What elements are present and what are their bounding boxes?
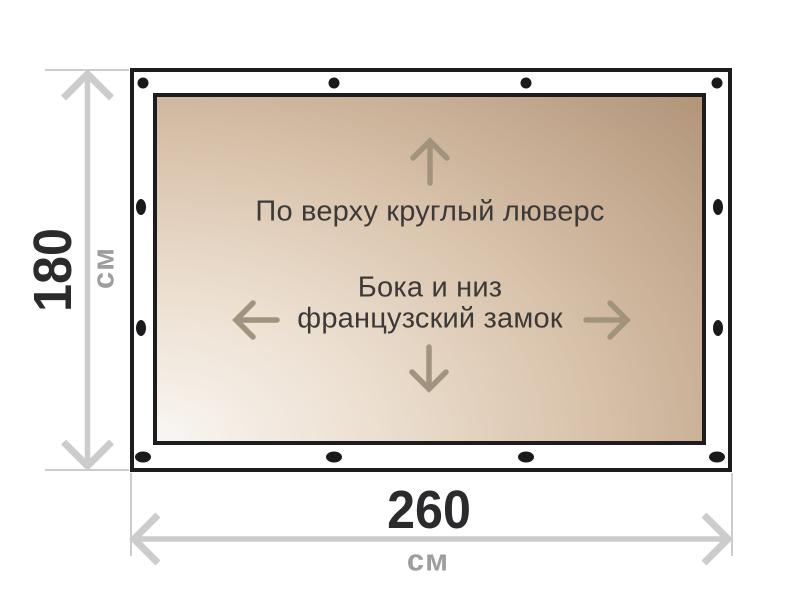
width-value: 260 bbox=[387, 483, 471, 537]
width-unit: см bbox=[407, 545, 449, 576]
other-edges-label-line2: французский замок bbox=[297, 305, 562, 334]
height-value: 180 bbox=[26, 228, 80, 312]
left-arrow-icon bbox=[236, 303, 277, 337]
up-arrow-icon bbox=[413, 141, 447, 183]
right-arrow-icon bbox=[586, 303, 627, 337]
top-edge-label: По верху круглый люверс bbox=[255, 198, 604, 227]
diagram-canvas: По верху круглый люверс Бока и низ франц… bbox=[0, 0, 800, 600]
other-edges-label-line1: Бока и низ bbox=[358, 274, 502, 303]
sheet-direction-arrows bbox=[236, 141, 627, 389]
down-arrow-icon bbox=[412, 347, 446, 389]
height-unit: см bbox=[88, 247, 119, 289]
